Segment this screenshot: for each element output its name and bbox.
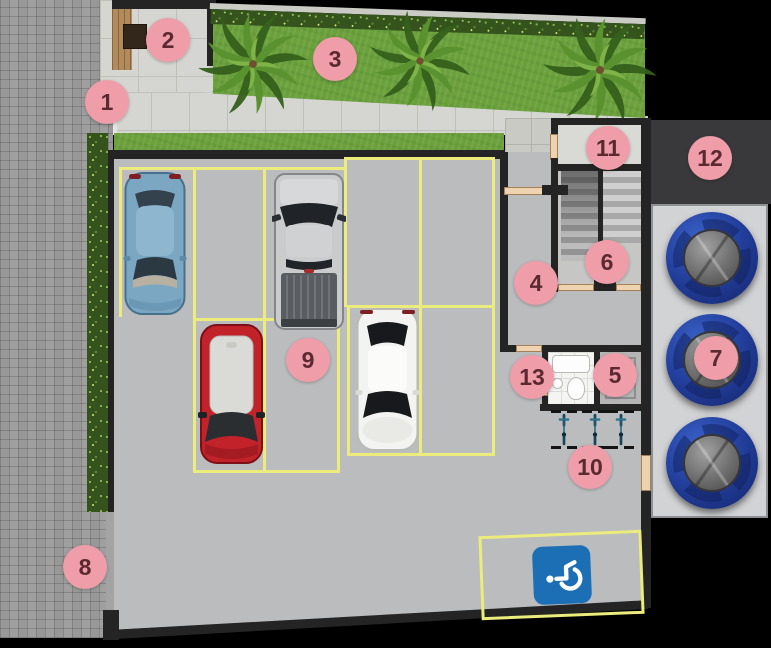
door [558, 284, 594, 291]
water-tank [666, 212, 758, 304]
marker-8[interactable]: 8 [63, 545, 107, 589]
parking-line [119, 167, 122, 317]
parking-line [337, 318, 340, 472]
marker-2[interactable]: 2 [146, 18, 190, 62]
marker-6[interactable]: 6 [585, 240, 629, 284]
wall [641, 118, 651, 608]
palm-tree [201, 12, 305, 116]
tank-lid [683, 434, 741, 492]
wall [551, 118, 648, 125]
marker-12[interactable]: 12 [688, 136, 732, 180]
palm-tree [371, 12, 469, 110]
water-tank [666, 417, 758, 509]
door [504, 187, 544, 195]
marker-7[interactable]: 7 [694, 336, 738, 380]
parking-line [347, 305, 350, 455]
wall [542, 185, 568, 195]
accessible-parking-space [478, 530, 644, 620]
bicycle [588, 413, 602, 447]
wall [106, 512, 114, 612]
floor-plan: 1 2 3 4 5 6 7 8 9 10 11 12 13 [0, 0, 771, 648]
marker-11[interactable]: 11 [586, 126, 630, 170]
door [616, 284, 641, 291]
marker-3[interactable]: 3 [313, 37, 357, 81]
toilet [567, 377, 585, 400]
parking-line [193, 470, 340, 473]
stair-flight [603, 171, 641, 243]
bicycle [614, 413, 628, 447]
door [641, 455, 651, 491]
silver-pickup-truck [272, 171, 346, 332]
marker-10[interactable]: 10 [568, 445, 612, 489]
shower-tray [552, 355, 590, 373]
door [550, 134, 558, 160]
marker-5[interactable]: 5 [593, 353, 637, 397]
parking-line [347, 453, 495, 456]
marker-4[interactable]: 4 [514, 261, 558, 305]
reception-desk [123, 24, 147, 49]
palm-tree [546, 16, 654, 124]
marker-9[interactable]: 9 [286, 338, 330, 382]
door [516, 345, 542, 352]
wheelchair-icon [538, 551, 586, 599]
white-car [355, 306, 420, 453]
parking-line [344, 157, 495, 160]
accessible-parking-sign [531, 545, 591, 605]
marker-13[interactable]: 13 [510, 355, 554, 399]
marker-1[interactable]: 1 [85, 80, 129, 124]
wall [112, 0, 216, 9]
hedge-left [87, 133, 108, 512]
blue-car [123, 170, 187, 317]
red-car [198, 322, 265, 466]
bicycle [557, 413, 571, 447]
tank-lid [683, 229, 741, 287]
wall [500, 152, 508, 352]
